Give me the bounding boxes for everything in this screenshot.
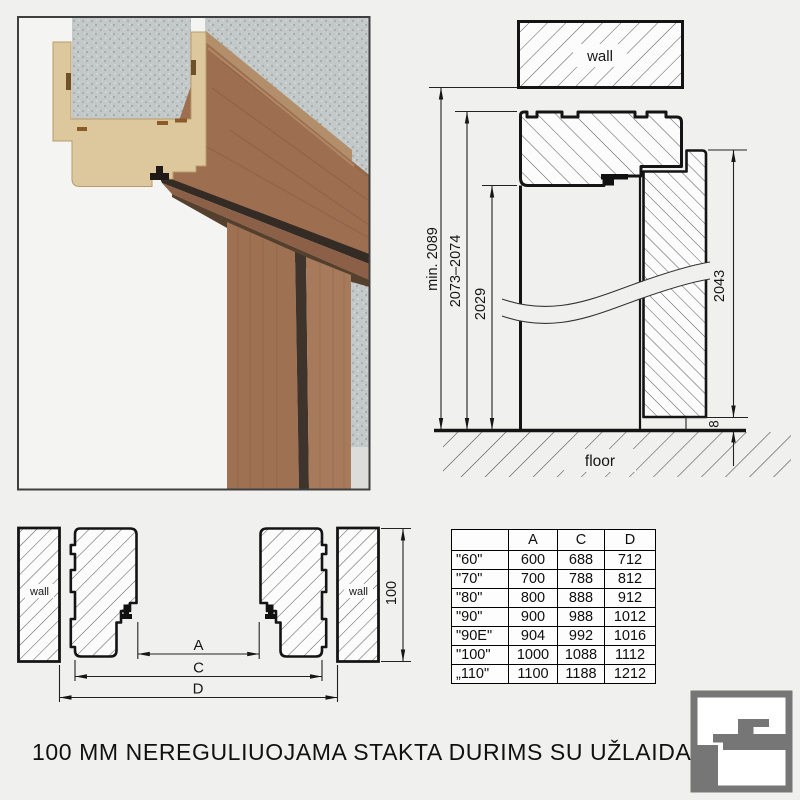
mdf-groove-dash-2 — [157, 121, 168, 125]
size-d: 812 — [605, 570, 656, 589]
horizontal-section-drawing: wall wall A C D 100 — [0, 515, 440, 715]
page-title: 100 MM NEREGULIUOJAMA STAKTA DURIMS SU U… — [32, 739, 772, 766]
dim-floor-gap: 8 — [707, 420, 722, 428]
size-c: 788 — [558, 570, 605, 589]
size-d: 912 — [605, 589, 656, 608]
size-a: 600 — [509, 551, 558, 570]
table-header-row: A C D — [452, 530, 656, 551]
dim-c-label: C — [193, 660, 204, 677]
wall-left-label: wall — [29, 586, 49, 598]
table-row: „110" 1100 1188 1212 — [452, 665, 656, 684]
jamb-left-profile — [71, 529, 137, 657]
header-blank — [452, 530, 509, 551]
table-row: "90E" 904 992 1016 — [452, 627, 656, 646]
dim-frame-depth: 100 — [384, 581, 400, 605]
table-row: "100" 1000 1088 1112 — [452, 646, 656, 665]
wall-right-label: wall — [348, 586, 368, 598]
size-a: 1000 — [509, 646, 558, 665]
concrete-wall-left — [72, 17, 191, 120]
size-name: „110" — [452, 665, 509, 684]
mdf-groove-dash-1 — [77, 127, 87, 131]
jamb-right-profile — [261, 529, 327, 657]
size-d: 1212 — [605, 665, 656, 684]
size-name: "90E" — [452, 627, 509, 646]
size-c: 688 — [558, 551, 605, 570]
table-row: "70" 700 788 812 — [452, 570, 656, 589]
dim-door-leaf-height: 2043 — [712, 270, 728, 302]
page: wall floor — [0, 0, 800, 800]
wall-shadow-strip — [351, 447, 370, 489]
header-a: A — [509, 530, 558, 551]
vertical-section-drawing: wall floor — [420, 10, 800, 500]
size-a: 700 — [509, 570, 558, 589]
size-d: 1012 — [605, 608, 656, 627]
size-name: "100" — [452, 646, 509, 665]
dim-frame-outer-height: 2073–2074 — [448, 235, 464, 308]
mdf-slot-right — [191, 60, 196, 75]
size-c: 1088 — [558, 646, 605, 665]
size-name: "60" — [452, 551, 509, 570]
table-row: "60" 600 688 712 — [452, 551, 656, 570]
size-c: 988 — [558, 608, 605, 627]
size-name: "90" — [452, 608, 509, 627]
size-c: 1188 — [558, 665, 605, 684]
size-a: 1100 — [509, 665, 558, 684]
table-row: "80" 800 888 912 — [452, 589, 656, 608]
size-a: 904 — [509, 627, 558, 646]
mdf-slot-left — [66, 73, 71, 90]
dim-min-total-height: min. 2089 — [425, 227, 441, 291]
dim-a-label: A — [193, 637, 203, 654]
dim-d-label: D — [193, 681, 204, 698]
size-a: 800 — [509, 589, 558, 608]
header-c: C — [558, 530, 605, 551]
size-a: 900 — [509, 608, 558, 627]
wall-label: wall — [586, 48, 613, 65]
size-table: A C D "60" 600 688 712 "70" 700 788 812 … — [451, 529, 656, 684]
header-d: D — [605, 530, 656, 551]
head-seal-detail — [601, 174, 628, 186]
dim-clear-opening-height: 2029 — [473, 288, 489, 320]
floor-label: floor — [585, 453, 615, 470]
size-c: 992 — [558, 627, 605, 646]
size-c: 888 — [558, 589, 605, 608]
size-d: 1016 — [605, 627, 656, 646]
product-photo — [17, 16, 371, 491]
mdf-groove-dash-3 — [175, 119, 187, 123]
table-row: "90" 900 988 1012 — [452, 608, 656, 627]
size-d: 712 — [605, 551, 656, 570]
size-d: 1112 — [605, 646, 656, 665]
size-name: "70" — [452, 570, 509, 589]
size-name: "80" — [452, 589, 509, 608]
